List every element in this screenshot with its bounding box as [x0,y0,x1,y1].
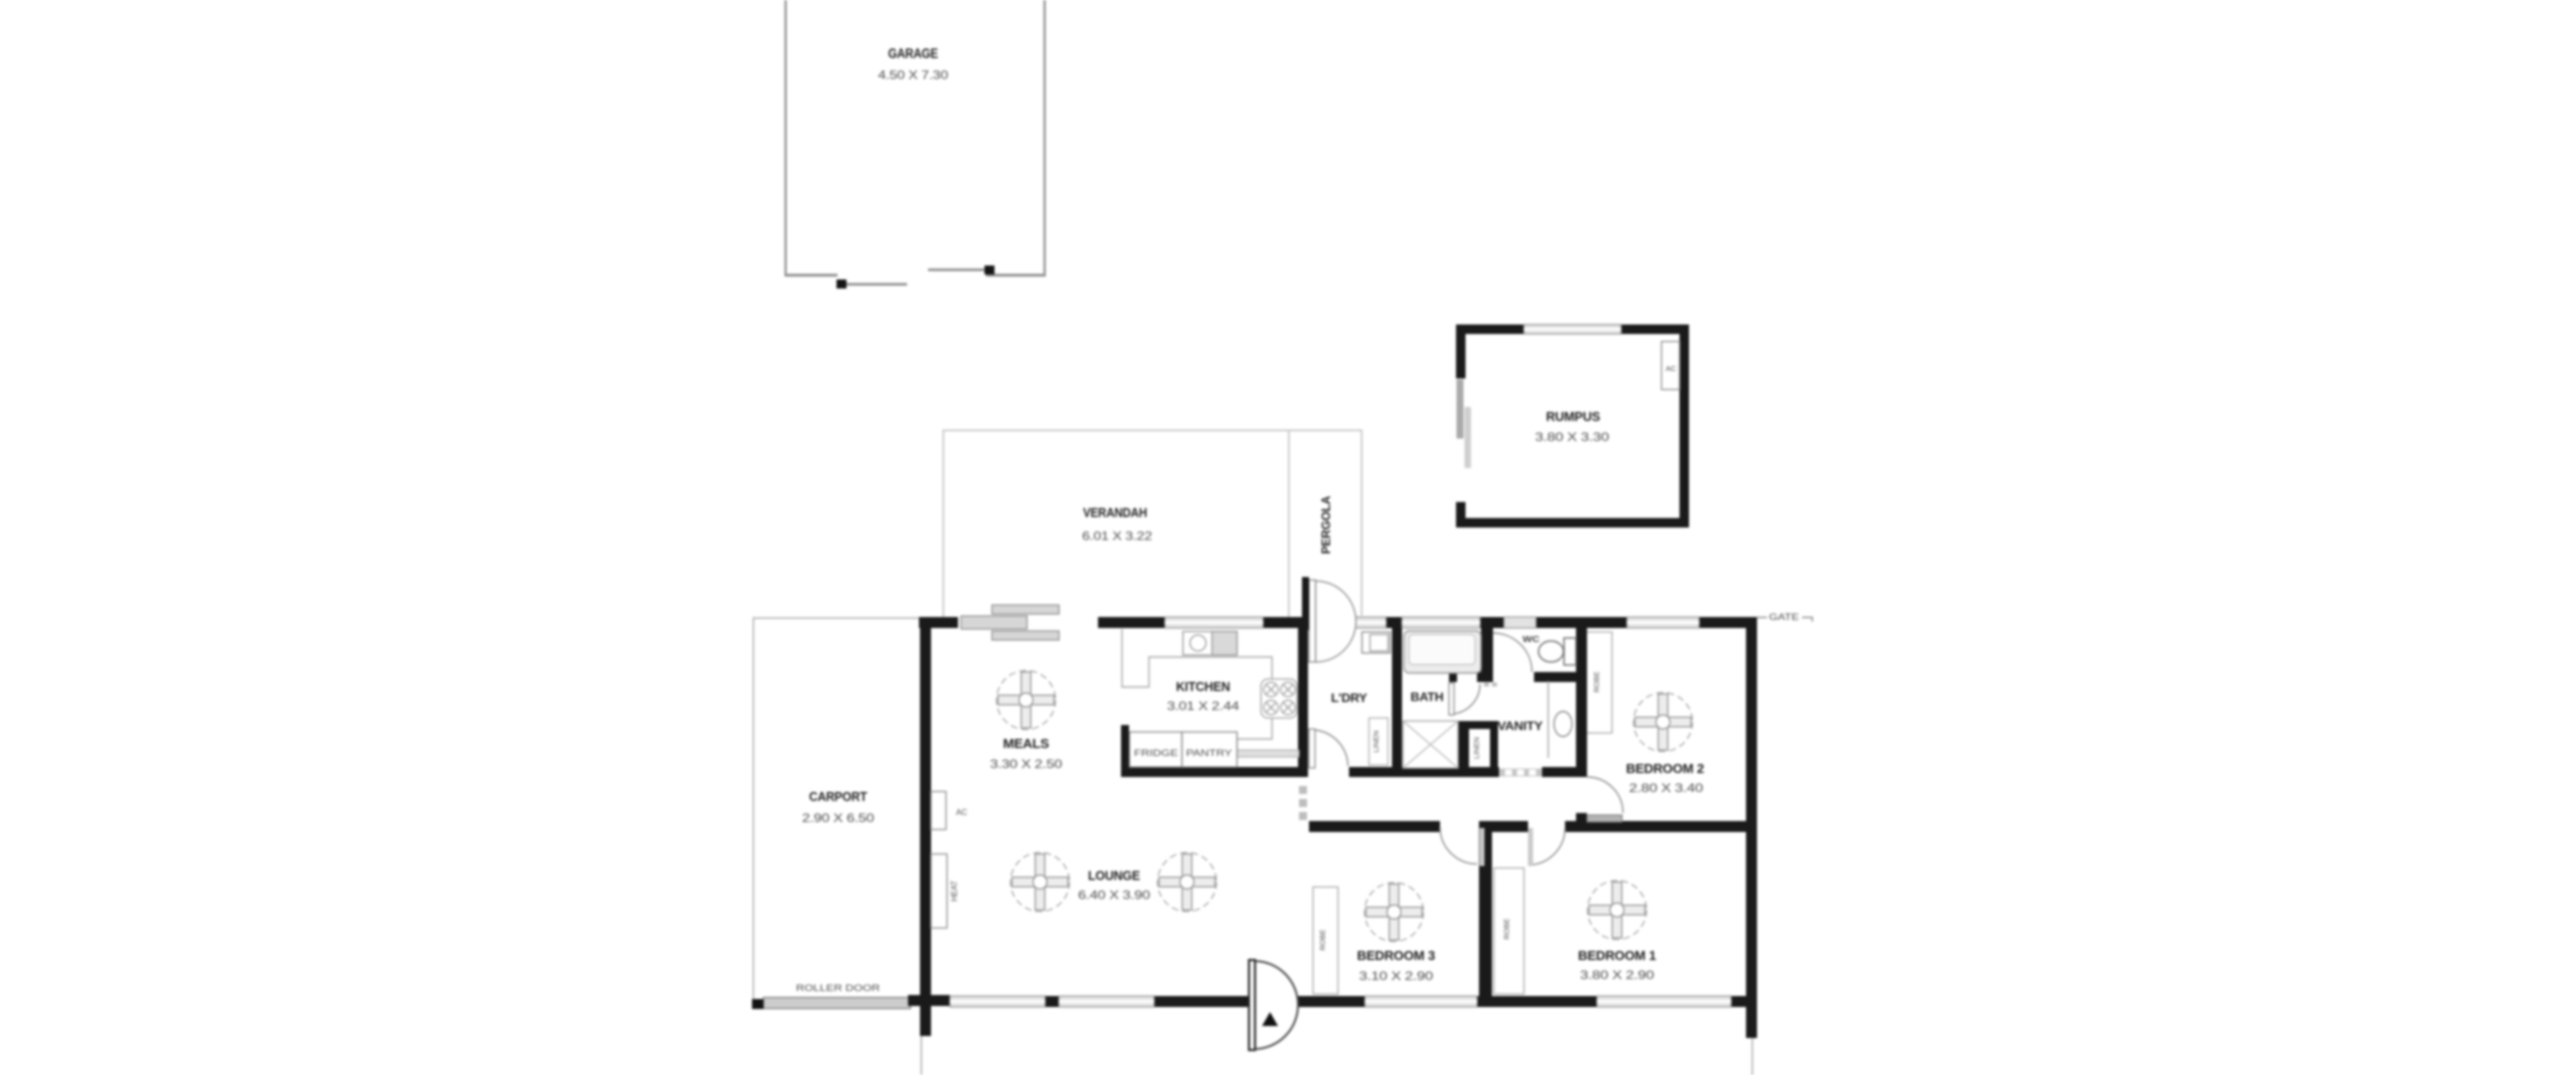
svg-text:LOUNGE: LOUNGE [1088,868,1140,883]
svg-text:2.90 X 6.50: 2.90 X 6.50 [802,813,874,825]
svg-text:VERANDAH: VERANDAH [1083,505,1147,520]
svg-text:GARAGE: GARAGE [888,46,938,61]
svg-text:FRIDGE: FRIDGE [1134,748,1178,758]
svg-text:HEAT: HEAT [950,881,959,902]
svg-text:6.40 X 3.90: 6.40 X 3.90 [1078,890,1150,902]
svg-text:PERGOLA: PERGOLA [1319,495,1333,554]
svg-text:CARPORT: CARPORT [809,789,867,804]
svg-text:RUMPUS: RUMPUS [1546,409,1601,424]
svg-text:3.30 X 2.50: 3.30 X 2.50 [990,759,1062,771]
svg-text:BATH: BATH [1411,692,1444,704]
svg-text:ROBE: ROBE [1502,918,1511,939]
svg-text:4.50 X 7.30: 4.50 X 7.30 [878,70,948,82]
svg-text:6.01 X 3.22: 6.01 X 3.22 [1082,531,1152,543]
svg-text:PANTRY: PANTRY [1186,748,1232,758]
svg-text:VANITY: VANITY [1498,721,1544,733]
svg-text:ROBE: ROBE [1318,929,1327,950]
svg-text:LINEN: LINEN [1472,737,1481,759]
svg-text:3.10 X 2.90: 3.10 X 2.90 [1359,971,1433,983]
svg-text:GATE: GATE [1769,612,1799,622]
svg-text:3.80 X 3.30: 3.80 X 3.30 [1535,432,1609,444]
svg-text:3.80 X 2.90: 3.80 X 2.90 [1580,970,1654,982]
svg-text:BEDROOM 2: BEDROOM 2 [1626,762,1704,776]
svg-text:AC: AC [956,808,967,817]
svg-text:KITCHEN: KITCHEN [1176,680,1230,694]
svg-text:BEDROOM 1: BEDROOM 1 [1578,949,1656,963]
svg-text:ROBE: ROBE [1592,671,1601,692]
svg-text:LINEN: LINEN [1372,730,1381,752]
svg-text:L'DRY: L'DRY [1331,693,1368,705]
svg-text:2.80 X 3.40: 2.80 X 3.40 [1629,783,1703,795]
svg-text:3.01 X 2.44: 3.01 X 2.44 [1167,701,1240,713]
svg-text:MEALS: MEALS [1003,736,1050,751]
svg-text:BEDROOM 3: BEDROOM 3 [1357,949,1435,963]
svg-text:AC: AC [1666,364,1677,373]
svg-text:WC: WC [1523,634,1540,644]
svg-text:ROLLER DOOR: ROLLER DOOR [796,983,881,993]
